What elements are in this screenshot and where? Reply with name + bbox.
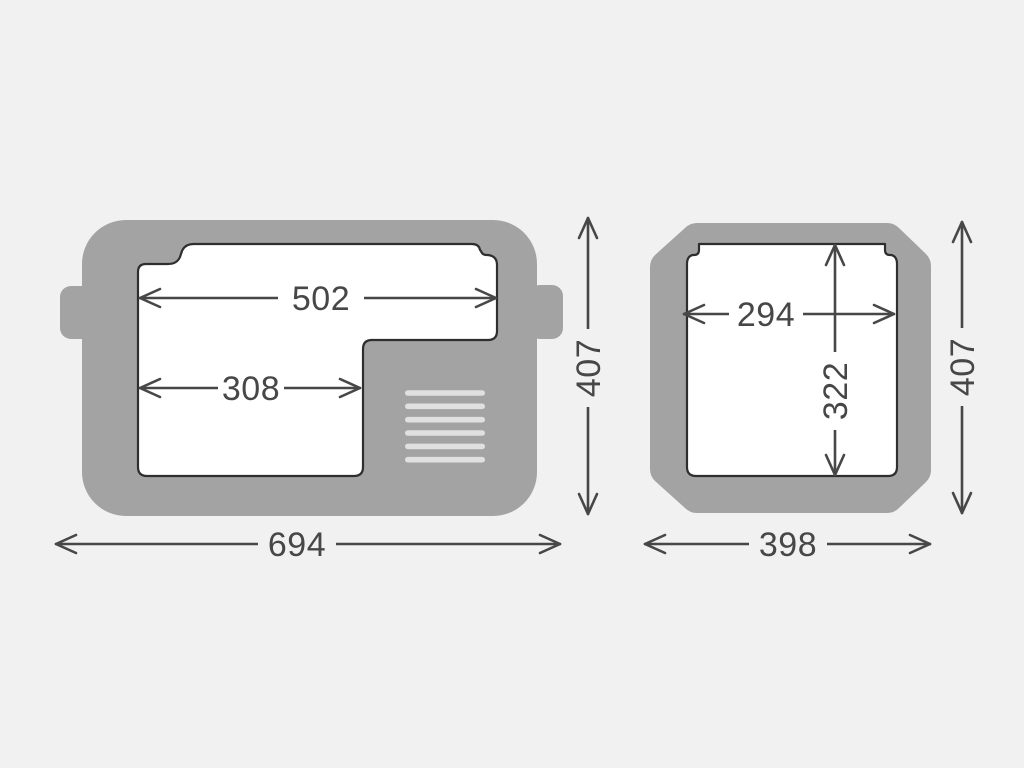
label-inner-width: 294 [737, 296, 795, 334]
vent-slat [405, 390, 485, 396]
vent-slat [405, 444, 485, 450]
vent-slat [405, 417, 485, 423]
label-end-overall-height: 407 [944, 338, 982, 396]
label-end-overall-width: 398 [759, 526, 817, 564]
end-interior-group [687, 244, 897, 476]
vent-slat [405, 430, 485, 436]
end-interior-cutout [687, 244, 897, 476]
label-compartment-width: 308 [222, 370, 280, 408]
vent-slat [405, 404, 485, 410]
label-inner-depth: 322 [817, 362, 855, 420]
dimension-diagram: 502 308 694 407 294 322 398 407 [0, 0, 1024, 768]
label-side-overall-width: 694 [268, 526, 326, 564]
diagram-canvas: 502 308 694 407 294 322 398 407 [0, 0, 1024, 768]
label-lid-opening-width: 502 [292, 280, 350, 318]
end-view [650, 223, 931, 513]
label-side-overall-height: 407 [570, 339, 608, 397]
vent-slat [405, 457, 485, 463]
side-view [60, 220, 563, 516]
